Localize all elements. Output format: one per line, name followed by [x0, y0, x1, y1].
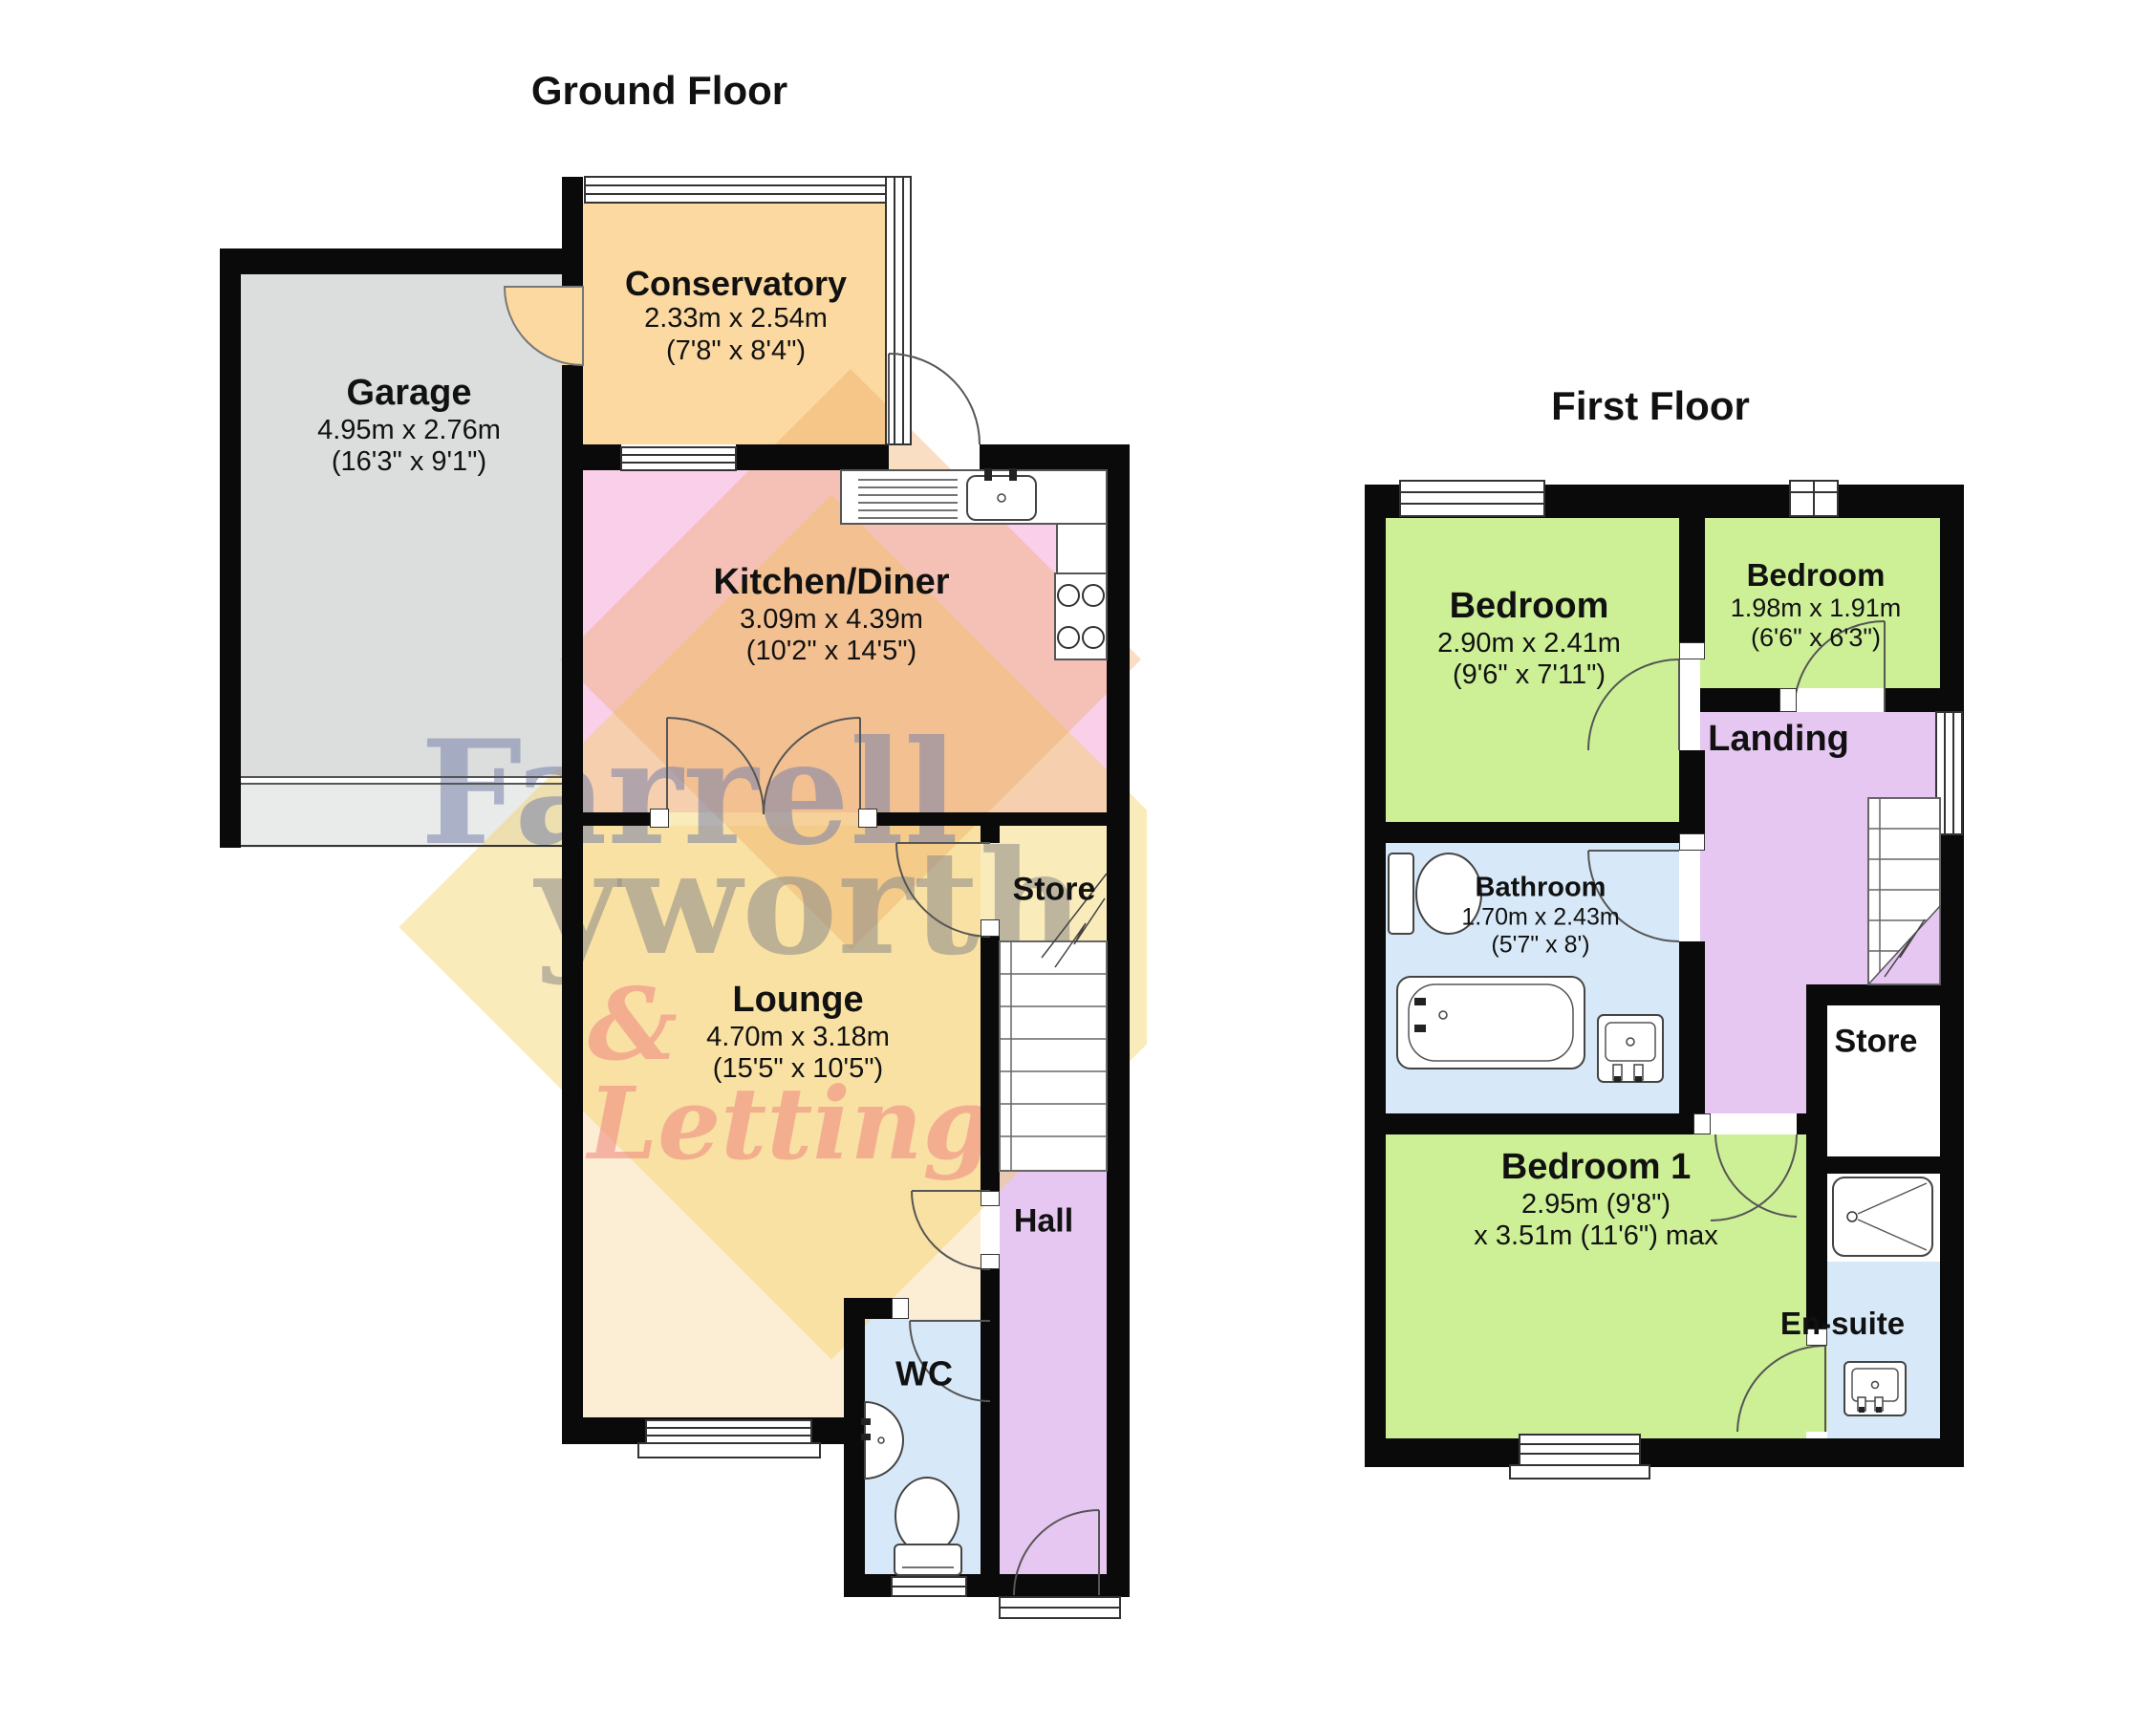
- hall-label: Hall: [1014, 1202, 1073, 1240]
- garage-door-icon: [241, 777, 562, 846]
- door-jamb: [981, 919, 1000, 937]
- store-first-label: Store: [1835, 1023, 1918, 1060]
- kitchen-label: Kitchen/Diner 3.09m x 4.39m (10'2" x 14'…: [713, 562, 949, 667]
- fixtures-and-doors-layer: [0, 0, 2156, 1728]
- bedroom-1-label: Bedroom 1 2.95m (9'8") x 3.51m (11'6") m…: [1474, 1147, 1717, 1252]
- door-jamb: [650, 809, 669, 828]
- garage-label: Garage 4.95m x 2.76m (16'3" x 9'1"): [317, 373, 501, 478]
- lounge-label: Lounge 4.70m x 3.18m (15'5" x 10'5"): [706, 980, 890, 1085]
- landing-label: Landing: [1708, 719, 1849, 761]
- door-jamb: [858, 809, 877, 828]
- staircase-ground: [1000, 874, 1107, 1171]
- conservatory-label: Conservatory 2.33m x 2.54m (7'8" x 8'4"): [625, 264, 847, 367]
- bathroom-basin-icon: [1598, 1015, 1663, 1082]
- wc-toilet-icon: [895, 1478, 961, 1575]
- staircase-first: [1868, 798, 1940, 984]
- bathroom-label: Bathroom 1.70m x 2.43m (5'7" x 8'): [1461, 873, 1619, 960]
- door-jamb: [1679, 642, 1705, 659]
- floorplan-canvas: Farrell yworth & Lettings: [0, 0, 2156, 1728]
- kitchen-hob-icon: [1055, 573, 1107, 659]
- bedroom-left-label: Bedroom 2.90m x 2.41m (9'6" x 7'11"): [1437, 586, 1621, 691]
- wc-label: WC: [895, 1353, 953, 1393]
- wc-basin-icon: [861, 1402, 903, 1479]
- ensuite-label: En-suite: [1780, 1306, 1905, 1342]
- ground-floor-title: Ground Floor: [531, 68, 787, 114]
- door-jamb: [892, 1298, 909, 1319]
- door-jamb: [1779, 688, 1797, 712]
- bedroom-right-label: Bedroom 1.98m x 1.91m (6'6" x 6'3"): [1731, 557, 1902, 653]
- first-floor-title: First Floor: [1551, 383, 1750, 429]
- door-jamb: [1679, 833, 1705, 851]
- bath-icon: [1397, 977, 1585, 1069]
- door-jamb: [1693, 1113, 1711, 1134]
- door-jamb: [981, 1254, 1000, 1269]
- door-jamb: [981, 1191, 1000, 1206]
- garage-conservatory-door-arc-icon: [505, 287, 583, 365]
- store-ground-label: Store: [1013, 871, 1096, 908]
- ensuite-basin-icon: [1844, 1362, 1906, 1415]
- shower-tray-icon: [1833, 1177, 1932, 1256]
